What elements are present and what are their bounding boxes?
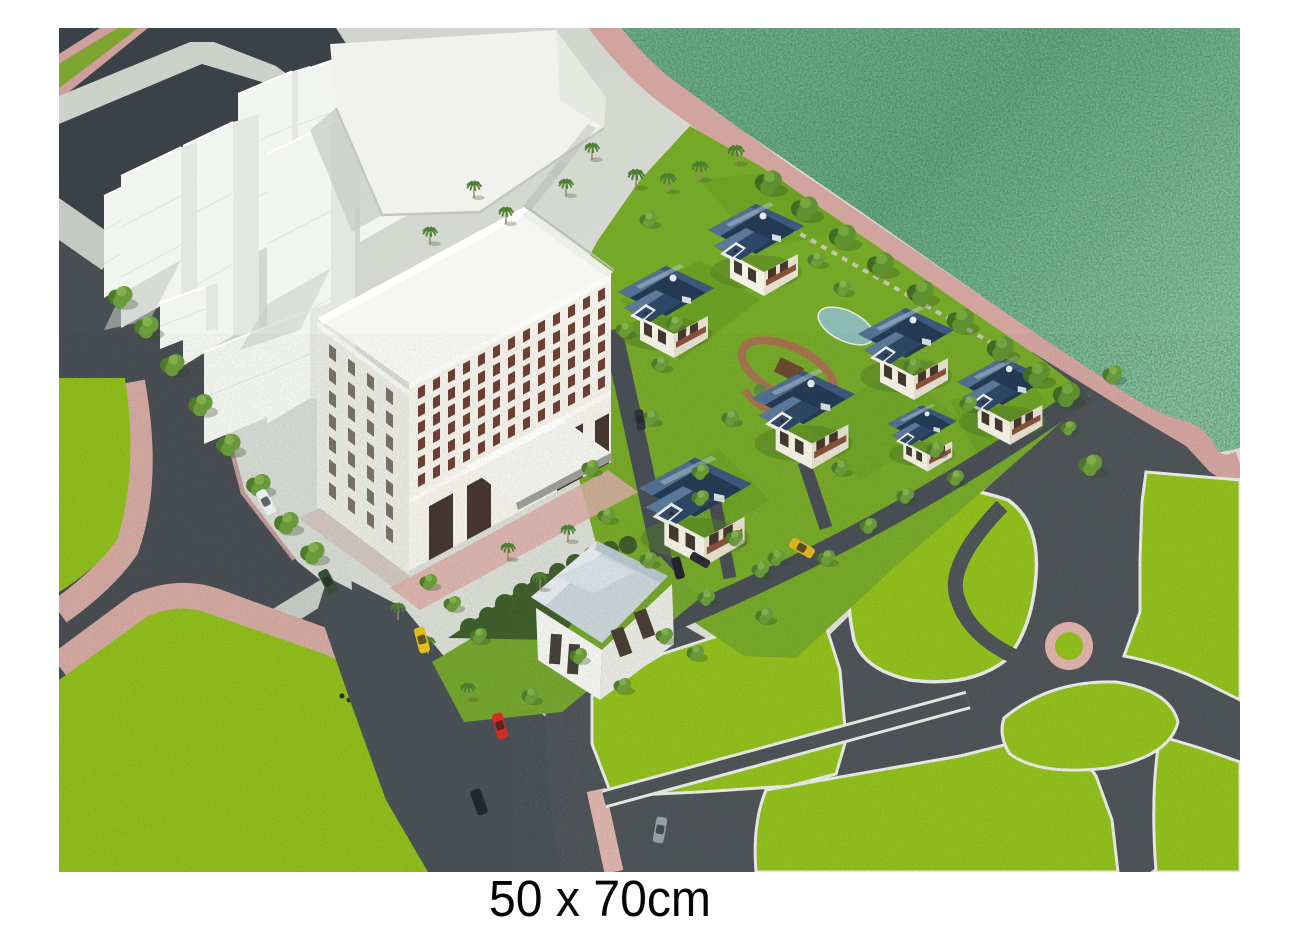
svg-text:50 x 70cm: 50 x 70cm <box>489 870 711 927</box>
